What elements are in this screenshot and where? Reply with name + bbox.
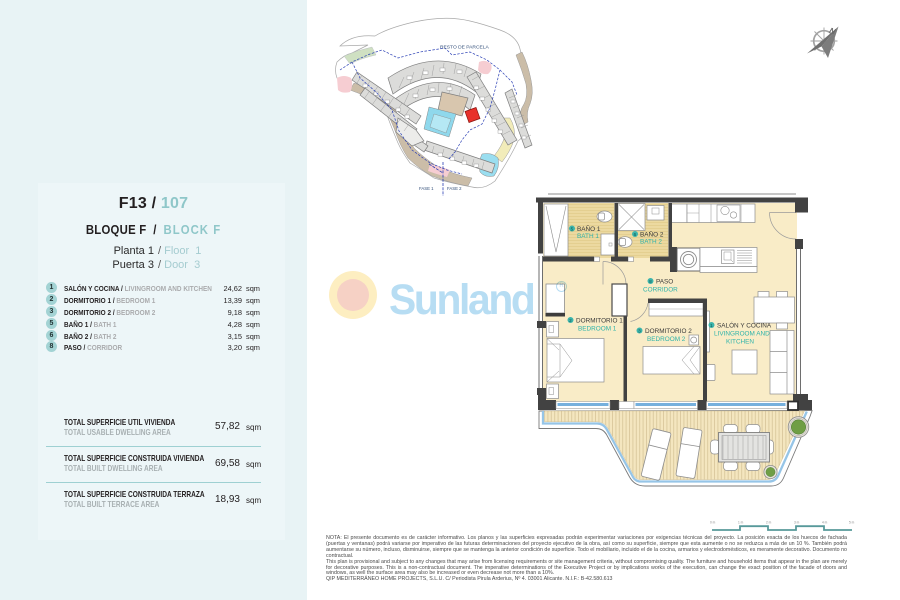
- svg-text:LIVINGROOM AND: LIVINGROOM AND: [714, 330, 770, 337]
- svg-text:2 m: 2 m: [766, 521, 772, 525]
- svg-text:2: 2: [569, 318, 572, 323]
- svg-text:3 m: 3 m: [794, 521, 800, 525]
- svg-text:8: 8: [649, 279, 652, 284]
- svg-text:1 m: 1 m: [738, 521, 744, 525]
- svg-text:BATH 1: BATH 1: [577, 233, 599, 240]
- svg-text:5 m: 5 m: [849, 521, 855, 525]
- svg-text:KITCHEN: KITCHEN: [726, 338, 754, 345]
- svg-text:5: 5: [571, 227, 574, 232]
- svg-text:6: 6: [634, 232, 637, 237]
- svg-text:DORMITORIO 2: DORMITORIO 2: [645, 328, 692, 335]
- svg-text:BEDROOM 1: BEDROOM 1: [578, 325, 617, 332]
- svg-text:PASO: PASO: [656, 278, 673, 285]
- svg-text:BAÑO 2: BAÑO 2: [640, 229, 664, 238]
- svg-text:BAÑO 1: BAÑO 1: [577, 224, 601, 233]
- svg-text:0 m: 0 m: [710, 521, 716, 525]
- svg-text:4 m: 4 m: [822, 521, 828, 525]
- svg-text:1: 1: [710, 323, 713, 328]
- svg-text:BEDROOM 2: BEDROOM 2: [647, 336, 686, 343]
- svg-text:SALÓN Y COCINA: SALÓN Y COCINA: [717, 320, 772, 329]
- svg-text:DORMITORIO 1: DORMITORIO 1: [576, 317, 623, 324]
- svg-text:BATH 2: BATH 2: [640, 238, 662, 245]
- svg-text:CORRIDOR: CORRIDOR: [643, 286, 678, 293]
- svg-text:3: 3: [638, 329, 641, 334]
